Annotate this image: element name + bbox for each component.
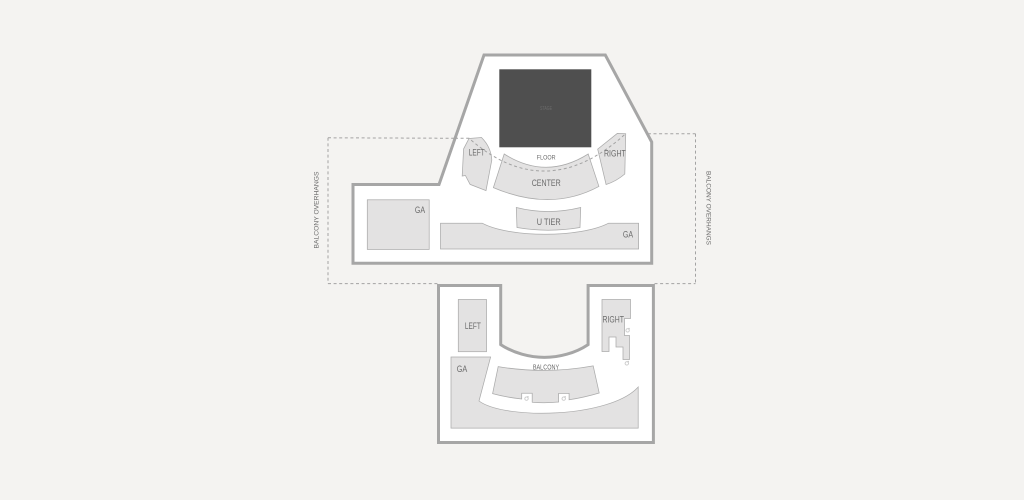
svg-text:BALCONY: BALCONY xyxy=(533,363,559,372)
svg-text:GA: GA xyxy=(457,364,468,374)
svg-text:RIGHT: RIGHT xyxy=(604,149,626,159)
svg-text:GA: GA xyxy=(623,229,633,239)
svg-text:CENTER: CENTER xyxy=(532,178,561,188)
svg-text:LEFT: LEFT xyxy=(465,321,481,331)
svg-text:GA: GA xyxy=(415,205,425,215)
svg-text:U TIER: U TIER xyxy=(537,217,561,228)
svg-text:STAGE: STAGE xyxy=(540,106,552,112)
svg-text:FLOOR: FLOOR xyxy=(537,155,556,162)
svg-text:LEFT: LEFT xyxy=(469,148,485,158)
svg-text:BALCONY OVERHANGS: BALCONY OVERHANGS xyxy=(704,171,711,246)
svg-text:RIGHT: RIGHT xyxy=(602,315,624,325)
svg-text:BALCONY OVERHANGS: BALCONY OVERHANGS xyxy=(314,171,321,249)
